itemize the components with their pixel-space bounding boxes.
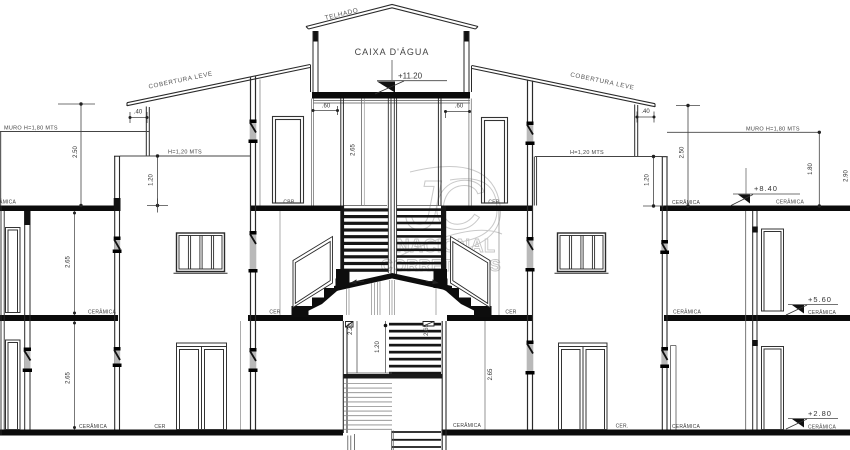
svg-text:1.20: 1.20 <box>375 341 381 353</box>
svg-text:MURO H=1,80 MTS: MURO H=1,80 MTS <box>4 126 58 132</box>
svg-text:.40: .40 <box>641 109 650 115</box>
svg-text:.60: .60 <box>455 104 464 110</box>
svg-text:CERÂMICA: CERÂMICA <box>673 309 701 316</box>
svg-text:2.65: 2.65 <box>66 256 72 268</box>
svg-text:CERÂMICA: CERÂMICA <box>453 422 481 429</box>
svg-text:CAIXA D'ÁGUA: CAIXA D'ÁGUA <box>355 47 430 57</box>
svg-text:CERÂMICA: CERÂMICA <box>79 423 107 430</box>
svg-text:CER: CER <box>505 310 516 316</box>
svg-text:MURO H=1,80 MTS: MURO H=1,80 MTS <box>746 126 800 132</box>
svg-text:CERÂMICA: CERÂMICA <box>672 423 700 430</box>
svg-text:CERÂMICA: CERÂMICA <box>776 199 804 206</box>
svg-text:2.65: 2.65 <box>351 144 357 156</box>
svg-text:CERÂMICA: CERÂMICA <box>88 309 116 316</box>
svg-text:+2.80: +2.80 <box>808 409 832 418</box>
svg-text:CER.: CER. <box>616 424 629 430</box>
svg-text:2.65: 2.65 <box>488 368 494 380</box>
svg-text:2.50: 2.50 <box>73 146 79 158</box>
svg-text:CER: CER <box>488 200 499 206</box>
svg-text:1.20: 1.20 <box>149 174 155 186</box>
svg-text:.40: .40 <box>134 110 143 116</box>
svg-text:2.20: 2.20 <box>348 323 354 335</box>
svg-text:.60: .60 <box>322 104 331 110</box>
svg-text:2.65: 2.65 <box>424 324 430 336</box>
svg-text:+5.60: +5.60 <box>808 295 832 304</box>
svg-text:1.20: 1.20 <box>645 174 651 186</box>
svg-text:+11.20: +11.20 <box>398 72 423 81</box>
svg-text:CERÂMICA: CERÂMICA <box>0 199 16 206</box>
svg-text:1.80: 1.80 <box>808 163 814 175</box>
svg-text:CER: CER <box>269 310 280 316</box>
svg-text:H=1,20 MTS: H=1,20 MTS <box>570 150 604 156</box>
svg-text:+8.40: +8.40 <box>754 184 778 193</box>
svg-text:CERÂMICA: CERÂMICA <box>808 424 836 431</box>
svg-text:2.90: 2.90 <box>844 170 850 182</box>
svg-text:CERÂMICA: CERÂMICA <box>672 199 700 206</box>
svg-text:2.50: 2.50 <box>680 146 686 158</box>
svg-text:2.65: 2.65 <box>66 372 72 384</box>
svg-text:CER: CER <box>154 424 165 430</box>
svg-text:H=1,20 MTS: H=1,20 MTS <box>168 150 202 156</box>
svg-text:CERÂMICA: CERÂMICA <box>808 309 836 316</box>
svg-text:CBR: CBR <box>283 200 294 206</box>
